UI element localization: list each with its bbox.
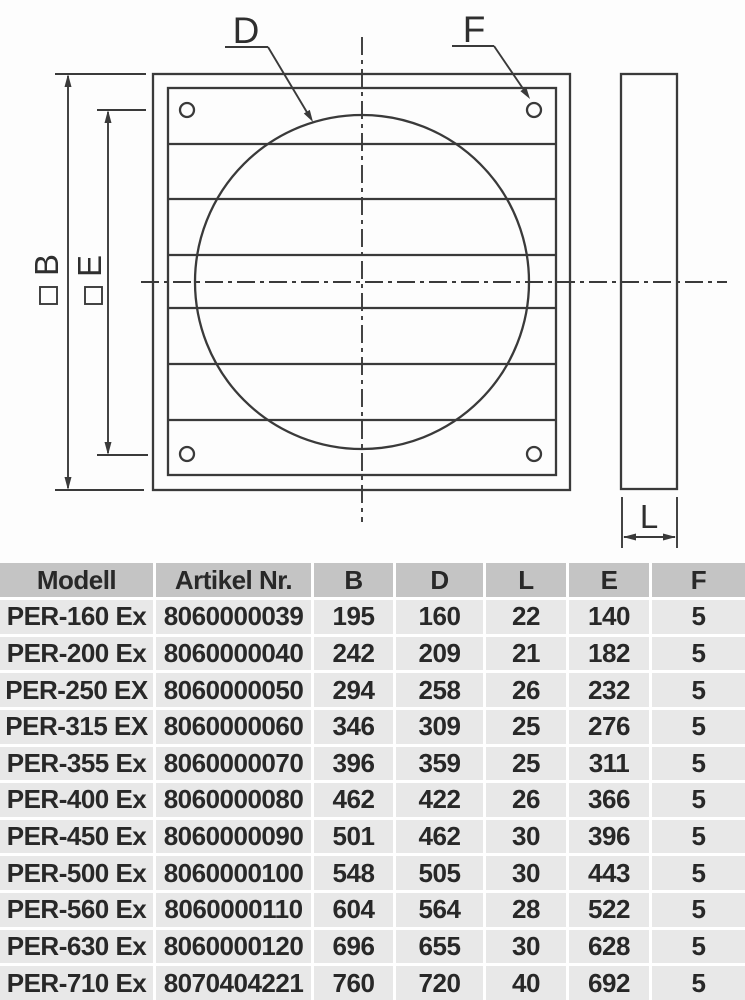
spec-table: ModellArtikel Nr.BDLEFPER-160 Ex80600000… xyxy=(0,563,745,1000)
table-cell: 25 xyxy=(486,710,566,744)
table-cell: 195 xyxy=(314,600,393,634)
table-row: PER-560 Ex8060000110604564285225 xyxy=(0,893,745,927)
col-header-modell: Modell xyxy=(0,563,153,597)
table-cell: 8060000050 xyxy=(156,673,311,707)
table-cell: 5 xyxy=(652,747,745,781)
table-header-row: ModellArtikel Nr.BDLEF xyxy=(0,563,745,597)
table-cell: 30 xyxy=(486,856,566,890)
table-cell: 311 xyxy=(569,747,649,781)
table-cell: 462 xyxy=(314,783,393,817)
table-cell: 22 xyxy=(486,600,566,634)
col-header-d: D xyxy=(396,563,483,597)
table-cell: PER-450 Ex xyxy=(0,820,153,854)
mounting-hole xyxy=(527,447,541,461)
table-cell: 140 xyxy=(569,600,649,634)
table-cell: 359 xyxy=(396,747,483,781)
table-cell: 548 xyxy=(314,856,393,890)
table-cell: 5 xyxy=(652,783,745,817)
table-cell: 258 xyxy=(396,673,483,707)
leader-d: D xyxy=(225,10,313,122)
square-symbol-icon xyxy=(85,287,102,304)
table-cell: 160 xyxy=(396,600,483,634)
table-cell: 604 xyxy=(314,893,393,927)
table-cell: PER-400 Ex xyxy=(0,783,153,817)
table-cell: 720 xyxy=(396,966,483,1000)
dim-label-l: L xyxy=(640,498,658,535)
table-row: PER-630 Ex8060000120696655306285 xyxy=(0,930,745,964)
dim-l-arrow-left xyxy=(623,534,636,541)
table-cell: 422 xyxy=(396,783,483,817)
table-cell: 346 xyxy=(314,710,393,744)
table-cell: 5 xyxy=(652,893,745,927)
table-cell: 30 xyxy=(486,930,566,964)
catalog-page: D F B xyxy=(0,0,745,1000)
dim-e-arrow-bottom xyxy=(105,442,112,455)
table-cell: 209 xyxy=(396,637,483,671)
table-cell: 8060000040 xyxy=(156,637,311,671)
table-cell: 564 xyxy=(396,893,483,927)
table-row: PER-710 Ex8070404221760720406925 xyxy=(0,966,745,1000)
table-cell: 628 xyxy=(569,930,649,964)
mounting-hole xyxy=(180,103,194,117)
dim-label-d: D xyxy=(233,10,260,51)
table-cell: 501 xyxy=(314,820,393,854)
table-cell: 522 xyxy=(569,893,649,927)
table-cell: 505 xyxy=(396,856,483,890)
table-row: PER-315 EX8060000060346309252765 xyxy=(0,710,745,744)
col-header-artikel-nr: Artikel Nr. xyxy=(156,563,311,597)
leader-d-line xyxy=(268,47,308,114)
table-row: PER-400 Ex8060000080462422263665 xyxy=(0,783,745,817)
table-cell: 443 xyxy=(569,856,649,890)
table-cell: 692 xyxy=(569,966,649,1000)
dim-label-e: E xyxy=(71,255,108,277)
table-cell: PER-500 Ex xyxy=(0,856,153,890)
table-cell: 396 xyxy=(314,747,393,781)
col-header-b: B xyxy=(314,563,393,597)
table-cell: 26 xyxy=(486,673,566,707)
table-row: PER-450 Ex8060000090501462303965 xyxy=(0,820,745,854)
table-cell: 396 xyxy=(569,820,649,854)
dim-label-f: F xyxy=(463,9,486,50)
table-cell: 276 xyxy=(569,710,649,744)
table-cell: PER-315 EX xyxy=(0,710,153,744)
table-cell: 8060000039 xyxy=(156,600,311,634)
mounting-hole xyxy=(527,103,541,117)
table-cell: 5 xyxy=(652,600,745,634)
table-cell: 25 xyxy=(486,747,566,781)
technical-drawing: D F B xyxy=(0,0,745,563)
table-cell: 8060000110 xyxy=(156,893,311,927)
side-view: L xyxy=(621,74,677,548)
table-cell: 5 xyxy=(652,966,745,1000)
dim-b-arrow-bottom xyxy=(65,477,72,490)
leader-f-line xyxy=(494,46,526,93)
col-header-l: L xyxy=(486,563,566,597)
table-cell: 26 xyxy=(486,783,566,817)
drawing-svg: D F B xyxy=(0,0,745,563)
table-cell: 40 xyxy=(486,966,566,1000)
table-cell: 5 xyxy=(652,930,745,964)
leader-f: F xyxy=(452,9,530,99)
dimension-e: E xyxy=(71,110,148,455)
table-cell: 309 xyxy=(396,710,483,744)
table-cell: 28 xyxy=(486,893,566,927)
table-cell: PER-710 Ex xyxy=(0,966,153,1000)
dim-e-arrow-top xyxy=(105,110,112,123)
table-cell: 696 xyxy=(314,930,393,964)
table-cell: 21 xyxy=(486,637,566,671)
table-cell: 8070404221 xyxy=(156,966,311,1000)
table-cell: 5 xyxy=(652,856,745,890)
table-row: PER-160 Ex8060000039195160221405 xyxy=(0,600,745,634)
table-row: PER-500 Ex8060000100548505304435 xyxy=(0,856,745,890)
table-cell: PER-250 EX xyxy=(0,673,153,707)
table-cell: 5 xyxy=(652,820,745,854)
col-header-e: E xyxy=(569,563,649,597)
table-cell: 8060000090 xyxy=(156,820,311,854)
table-cell: 182 xyxy=(569,637,649,671)
table-cell: PER-355 Ex xyxy=(0,747,153,781)
table-cell: PER-160 Ex xyxy=(0,600,153,634)
table-cell: 8060000060 xyxy=(156,710,311,744)
table-row: PER-355 Ex8060000070396359253115 xyxy=(0,747,745,781)
table-cell: 242 xyxy=(314,637,393,671)
front-view xyxy=(141,37,727,522)
dim-b-arrow-top xyxy=(65,74,72,87)
table-cell: PER-200 Ex xyxy=(0,637,153,671)
square-symbol-icon xyxy=(40,287,57,304)
table-row: PER-200 Ex8060000040242209211825 xyxy=(0,637,745,671)
col-header-f: F xyxy=(652,563,745,597)
dim-l-arrow-right xyxy=(663,534,676,541)
table-cell: 8060000120 xyxy=(156,930,311,964)
table-cell: 5 xyxy=(652,673,745,707)
table-cell: 5 xyxy=(652,710,745,744)
table-cell: 8060000070 xyxy=(156,747,311,781)
table-cell: 5 xyxy=(652,637,745,671)
table-cell: 232 xyxy=(569,673,649,707)
table-row: PER-250 EX8060000050294258262325 xyxy=(0,673,745,707)
table-cell: 8060000080 xyxy=(156,783,311,817)
table-cell: PER-630 Ex xyxy=(0,930,153,964)
table-cell: PER-560 Ex xyxy=(0,893,153,927)
table-cell: 30 xyxy=(486,820,566,854)
table-cell: 760 xyxy=(314,966,393,1000)
table-cell: 366 xyxy=(569,783,649,817)
table-cell: 8060000100 xyxy=(156,856,311,890)
table-cell: 462 xyxy=(396,820,483,854)
dimension-b: B xyxy=(28,74,146,490)
mounting-hole xyxy=(180,447,194,461)
table-cell: 294 xyxy=(314,673,393,707)
table-cell: 655 xyxy=(396,930,483,964)
leader-d-arrow xyxy=(304,110,313,122)
dim-label-b: B xyxy=(28,254,65,276)
